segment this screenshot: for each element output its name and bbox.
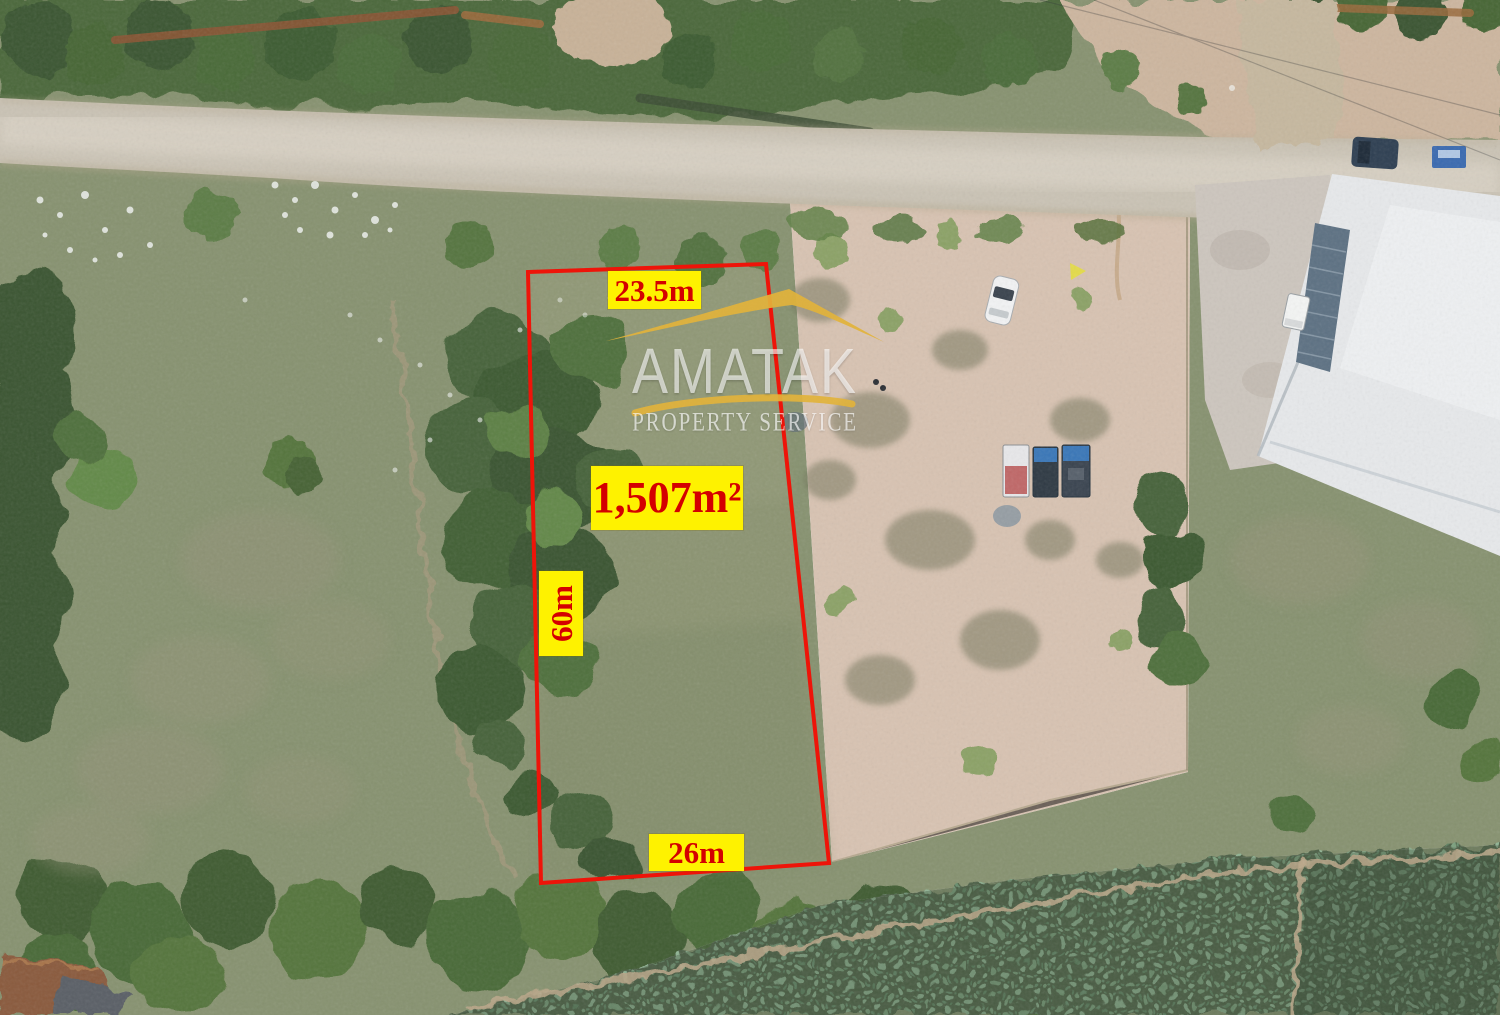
plot-length-label-text: 60m xyxy=(546,585,577,642)
aerial-land-listing-photo: AMATAK PROPERTY SERVICE 23.5m 1,507m² 60… xyxy=(0,0,1500,1015)
plot-width-bottom-label: 26m xyxy=(649,834,744,871)
plot-area-label: 1,507m² xyxy=(591,466,743,530)
plot-width-top-label: 23.5m xyxy=(608,271,701,309)
plot-length-label: 60m xyxy=(539,571,583,656)
aerial-photo-scene xyxy=(0,0,1500,1015)
photo-grain xyxy=(0,0,1500,1015)
